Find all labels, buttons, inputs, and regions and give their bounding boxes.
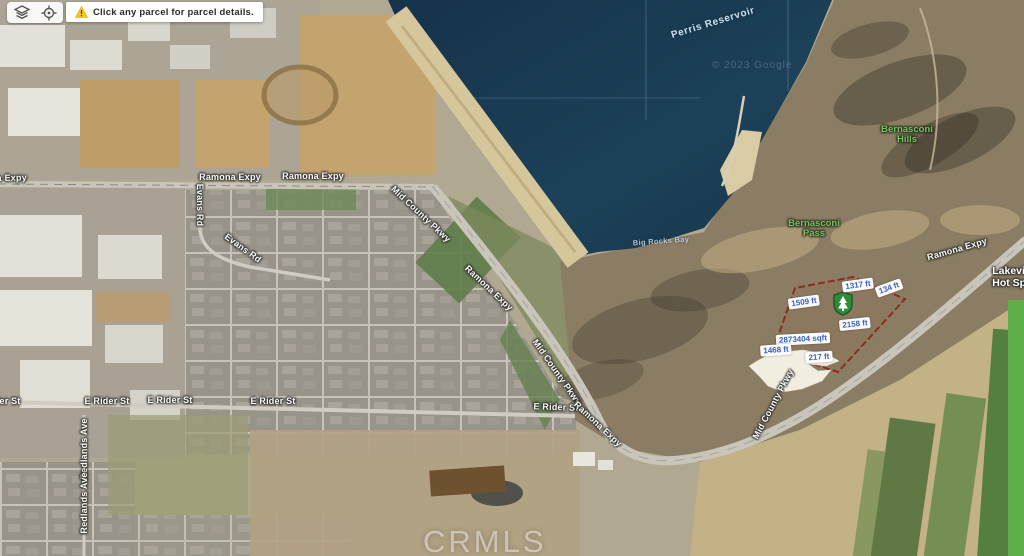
map-toolbar <box>7 2 63 23</box>
tooltip-text: Click any parcel for parcel details. <box>93 7 254 18</box>
layers-icon[interactable] <box>13 4 30 21</box>
protected-area-icon[interactable] <box>832 291 854 321</box>
warning-icon <box>75 6 88 18</box>
parcel-hint-tooltip: Click any parcel for parcel details. <box>66 2 263 22</box>
crosshair-icon[interactable] <box>40 4 57 21</box>
map-viewport[interactable]: © 2023 Google CRMLS Lakeview Hot Springs… <box>0 0 1024 556</box>
satellite-imagery <box>0 0 1024 556</box>
